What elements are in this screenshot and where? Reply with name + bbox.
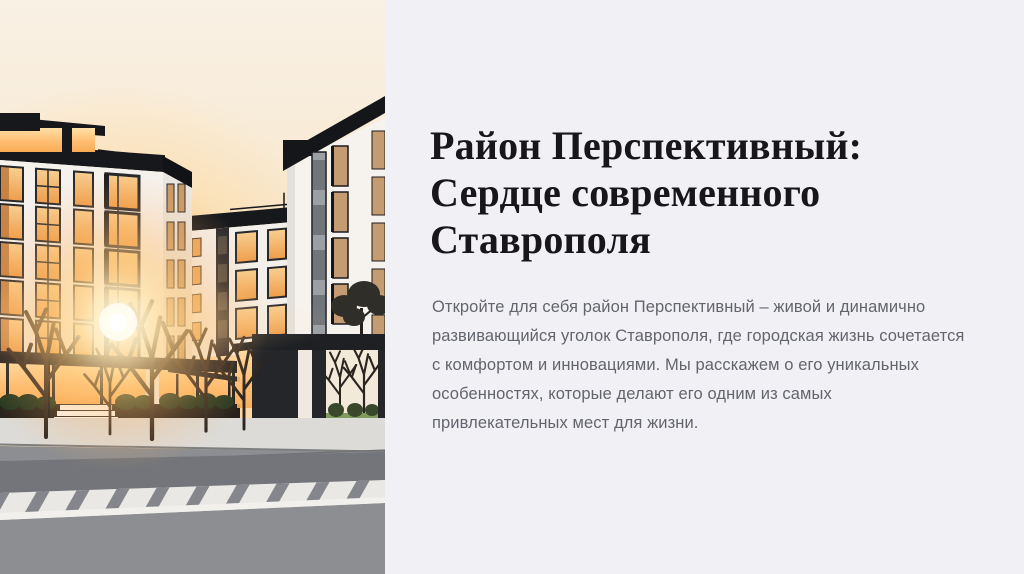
title-line-2: Сердце современного xyxy=(430,169,984,216)
description-line-2: развивающийся уголок Ставрополя, где гор… xyxy=(432,322,984,351)
city-illustration-svg xyxy=(0,0,385,574)
title-line-1: Район Перспективный: xyxy=(430,122,984,169)
slide: Район Перспективный: Сердце современного… xyxy=(0,0,1024,574)
content-panel: Район Перспективный: Сердце современного… xyxy=(385,0,1024,574)
slide-title: Район Перспективный: Сердце современного… xyxy=(430,122,984,263)
description-line-1: Откройте для себя район Перспективный – … xyxy=(432,293,984,322)
description-line-5: привлекательных мест для жизни. xyxy=(432,409,984,438)
city-illustration xyxy=(0,0,385,574)
title-line-3: Ставрополя xyxy=(430,216,984,263)
description-line-3: с комфортом и инновациями. Мы расскажем … xyxy=(432,351,984,380)
slide-description: Откройте для себя район Перспективный – … xyxy=(432,293,984,438)
description-line-4: особенностях, которые делают его одним и… xyxy=(432,380,984,409)
